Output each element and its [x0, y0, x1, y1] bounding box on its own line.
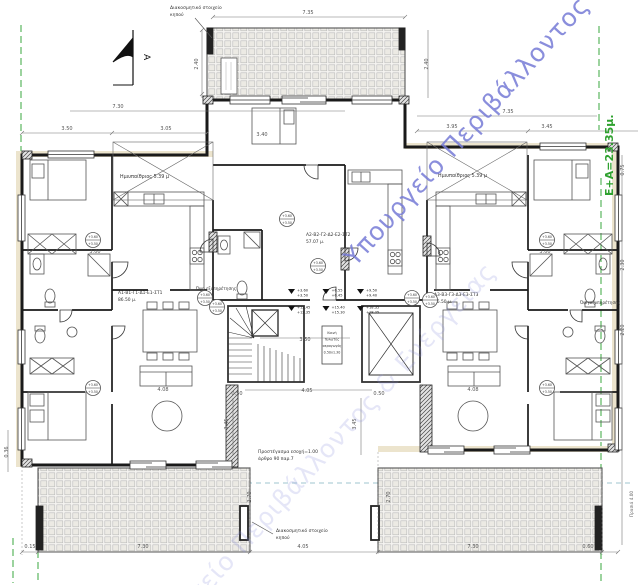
bubble-top-value: +3.60 [407, 293, 417, 297]
kitchen [436, 192, 526, 290]
window [18, 330, 25, 364]
level-value-top: +18.35 [366, 306, 379, 310]
dim-label: 2.70 [386, 491, 392, 502]
bottom-right-terrace [378, 468, 602, 552]
dim-label: 0.75 [620, 164, 626, 175]
bed [554, 392, 612, 440]
semi-open-right-label: Ημιυπαίθριος 5.39 μ [438, 172, 487, 179]
dim-label: 2.30 [620, 259, 626, 270]
bubble-top-value: +3.60 [542, 235, 552, 239]
toilet [237, 281, 247, 295]
bubble-bottom-value: +3.50 [88, 390, 98, 394]
canopy-note-2: άρθρο 90 παρ.7 [258, 455, 294, 462]
dim-label: 2.40 [424, 58, 430, 69]
dim-label: 7.35 [502, 109, 513, 115]
semi-open-verandas [113, 142, 527, 200]
bubble-top-value: +3.60 [200, 293, 210, 297]
balcony-door [494, 446, 530, 454]
dim-label: 0.36 [4, 446, 10, 457]
apartment-center-id: Α2-Β2-Γ2-Δ2-Ε2-ΣΤ2 [306, 232, 351, 238]
dim-label: 2.20 [620, 324, 626, 335]
bed [252, 108, 296, 144]
level-flag-icon [357, 306, 364, 311]
kitchen [114, 192, 204, 290]
elevator-shaft [362, 306, 420, 382]
apartment-left-area: 86.50 μ. [118, 297, 136, 303]
wardrobe [28, 234, 76, 254]
level-value-bottom: +6.45 [332, 294, 343, 298]
dim-label: 7.35 [302, 10, 313, 16]
dim-label: 4.08 [157, 387, 168, 393]
bed [534, 160, 590, 200]
height-regulation-note: Ε+Α=23.35μ. [603, 86, 616, 196]
dining-table [443, 302, 497, 360]
bed [28, 392, 86, 440]
level-value-bottom: +15.30 [332, 311, 346, 315]
balcony-door [428, 446, 464, 454]
bubble-bottom-value: +3.50 [88, 242, 98, 246]
bubble-top-value: +3.60 [282, 214, 292, 218]
deco-bottom-label-1: Διακοσμητικό στοιχείο [276, 527, 328, 534]
dim-label: 3.50 [299, 337, 310, 343]
level-value-top: +9.50 [366, 289, 378, 293]
window [18, 195, 25, 241]
level-value-bottom: +18.25 [366, 311, 379, 315]
dim-label: 7.30 [467, 544, 478, 550]
level-value-bottom: +9.40 [366, 294, 378, 298]
bubble-bottom-value: +3.50 [200, 300, 210, 304]
planter-box [221, 58, 237, 94]
toilet [45, 289, 55, 303]
deco-top-label-2: κηπού [170, 11, 184, 18]
level-value-top: +3.60 [297, 289, 309, 293]
door-swings [60, 165, 582, 339]
floor-plan-drawing: Α [0, 0, 640, 585]
level-value-bottom: +3.50 [297, 294, 309, 298]
level-value-top: +6.55 [332, 289, 343, 293]
dim-label: 4.05 [297, 544, 308, 550]
floor-plan-page: Α [0, 0, 640, 585]
north-letter: Α [141, 54, 151, 61]
window [352, 96, 392, 104]
interior-walls [22, 155, 618, 465]
level-flag-icon [323, 306, 330, 311]
shaft-note-line: Κοινή [327, 331, 336, 335]
bubble-bottom-value: +3.50 [313, 268, 323, 272]
dim-label: 3.45 [352, 418, 358, 429]
bubble-bottom-value: +3.50 [407, 300, 417, 304]
balcony-door [196, 461, 232, 469]
bubble-bottom-value: +3.50 [542, 242, 552, 246]
bubble-top-value: +3.60 [313, 261, 323, 265]
level-flag-icon [288, 289, 295, 294]
shaft-note-line: 0.50x1.30 [324, 351, 341, 355]
level-value-top: +12.45 [297, 306, 310, 310]
round-table [152, 401, 182, 431]
window [48, 151, 94, 158]
shaft-note-line: αεραγωγός [323, 344, 342, 348]
round-table [458, 401, 488, 431]
semi-open-left-label: Ημιυπαίθριος 5.39 μ [120, 173, 169, 180]
dim-label: 0.50 [231, 391, 242, 397]
dim-label: 4.08 [467, 387, 478, 393]
deco-bottom-label-2: κηπού [276, 534, 290, 541]
service-right-label: Όψη εξυπηρέτησης [579, 300, 621, 305]
apartment-left-id: Α1-Β1-Γ1-Δ1-Ε1-ΣΤ1 [118, 290, 163, 296]
dim-label: 3.45 [541, 124, 552, 130]
sink [67, 327, 77, 337]
bubble-top-value: +3.60 [88, 235, 98, 239]
canopy-note-1: Προστέγασμα εσοχή=1.00 [258, 448, 318, 455]
level-value-top: +15.40 [332, 306, 346, 310]
dim-label: 3.50 [61, 126, 72, 132]
level-flag-icon [357, 289, 364, 294]
apartment-right-id: Α3-Β3-Γ3-Δ3-Ε3-ΣΤ3 [434, 292, 479, 298]
level-flag-icon [323, 289, 330, 294]
sink [563, 327, 573, 337]
dim-label: 3.00 [539, 249, 550, 255]
apartment-center-area: 57.07 μ. [306, 239, 324, 245]
wardrobe [566, 358, 610, 374]
balcony-door [130, 461, 166, 469]
prasia-note: Πρασιά 4.00 [629, 491, 634, 517]
sofa [140, 366, 192, 386]
level-flag-icon [288, 306, 295, 311]
dim-label: 7.30 [137, 544, 148, 550]
window [615, 408, 622, 450]
dim-label: 3.40 [256, 132, 267, 138]
dim-label: 0.15 [24, 544, 35, 550]
dim-label: 7.30 [112, 104, 123, 110]
bubble-bottom-value: +3.50 [282, 221, 292, 225]
window [18, 408, 25, 450]
north-arrow-icon [113, 30, 133, 85]
bubble-bottom-value: +3.50 [212, 309, 222, 313]
bottom-left-terrace [38, 468, 250, 552]
dim-label: 3.95 [446, 124, 457, 130]
dim-label: 3.05 [160, 126, 171, 132]
sliding-door [282, 96, 326, 104]
wardrobe [30, 358, 74, 374]
level-value-bottom: +12.35 [297, 311, 310, 315]
dim-label: 3.45 [224, 418, 230, 429]
air-shaft-note-box: Κοινήπυλωτήςαεραγωγός0.50x1.30 [322, 326, 342, 364]
dim-label: 0.50 [373, 391, 384, 397]
window [615, 195, 622, 241]
dining-table [143, 302, 197, 360]
bubble-top-value: +3.60 [212, 302, 222, 306]
window [230, 96, 270, 104]
wardrobe [564, 234, 612, 254]
staircase [228, 306, 304, 382]
bubble-top-value: +3.60 [88, 383, 98, 387]
bubble-top-value: +3.60 [542, 383, 552, 387]
kitchen [348, 170, 402, 274]
service-left-label: Όψη εξυπηρέτησης [195, 286, 237, 291]
deco-top-label-1: Διακοσμητικό στοιχείο [170, 4, 222, 11]
bubble-top-value: +3.60 [425, 295, 435, 299]
bubble-bottom-value: +3.50 [542, 390, 552, 394]
bed [30, 160, 86, 200]
dim-label: 2.70 [247, 491, 253, 502]
dim-label: 3.00 [89, 249, 100, 255]
dim-label: 4.05 [301, 388, 312, 394]
level-markers: +3.60+3.50+6.55+6.45+9.50+9.40+12.45+12.… [288, 289, 379, 315]
dim-label: 0.60 [582, 544, 593, 550]
bubble-bottom-value: +3.50 [425, 302, 435, 306]
sofa [448, 366, 500, 386]
dim-label: 2.40 [194, 58, 200, 69]
window [540, 143, 586, 150]
